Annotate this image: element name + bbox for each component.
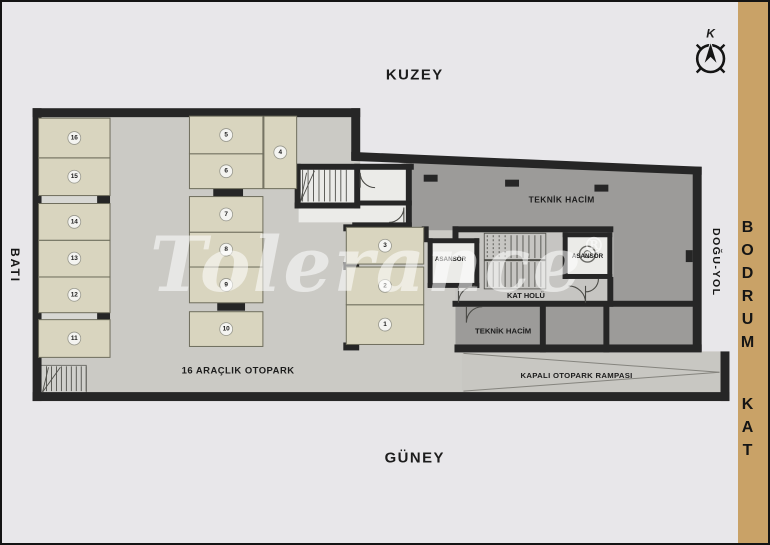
parking-spot-number: 12 — [71, 291, 79, 298]
parking-spot-number: 4 — [278, 149, 282, 156]
label-east: DOĞU-YOL — [710, 228, 722, 297]
parking-spot: 4 — [264, 116, 297, 188]
parking-spot-number: 9 — [224, 281, 228, 288]
floor-title: BODRUM KAT — [738, 142, 770, 542]
compass: K — [697, 27, 725, 73]
parking-spot-number: 2 — [383, 282, 387, 289]
parking-spot: 8 — [189, 232, 262, 267]
label-south: GÜNEY — [385, 450, 445, 467]
parking-spot: 3 — [346, 227, 423, 264]
parking-spot-number: 16 — [71, 134, 79, 141]
label-asansor-right: ASANSÖR — [572, 253, 604, 260]
parking-spot-number: 11 — [71, 335, 78, 342]
parking-spot: 7 — [189, 197, 262, 233]
label-teknik-hacim-small: TEKNİK HACİM — [475, 327, 531, 336]
floor-plan-drawing: 12345678910111213141516 TEKNİK HACİM ASA… — [2, 2, 768, 543]
label-rampa: KAPALI OTOPARK RAMPASI — [521, 371, 633, 380]
parking-spot: 14 — [39, 204, 110, 241]
label-teknik-hacim-main: TEKNİK HACİM — [529, 195, 595, 205]
label-kat-holu: KAT HOLÜ — [507, 291, 545, 300]
parking-spot: 10 — [189, 312, 262, 347]
parking-spot: 5 — [189, 116, 262, 154]
label-north: KUZEY — [386, 67, 444, 83]
parking-spot-number: 13 — [71, 255, 79, 262]
stair-room-area — [299, 168, 408, 223]
parking-spot-number: 8 — [224, 246, 228, 253]
parking-spot-number: 5 — [224, 132, 228, 139]
label-west: BATI — [8, 248, 22, 283]
parking-spot: 11 — [39, 320, 110, 358]
parking-spot-number: 7 — [224, 211, 228, 218]
parking-spot-number: 3 — [383, 242, 387, 249]
parking-spot: 9 — [189, 267, 262, 303]
parking-spot: 13 — [39, 240, 110, 277]
parking-spot-number: 15 — [71, 173, 79, 180]
parking-spot: 12 — [39, 277, 110, 313]
parking-spot-number: 14 — [71, 218, 79, 225]
parking-spot-number: 1 — [383, 321, 387, 328]
compass-letter: K — [706, 27, 716, 41]
parking-spot: 15 — [39, 158, 110, 196]
parking-spot-number: 6 — [224, 168, 228, 175]
parking-spot: 2 — [346, 267, 423, 305]
parking-spots: 12345678910111213141516 — [39, 116, 424, 357]
floor-plan-page: 12345678910111213141516 TEKNİK HACİM ASA… — [0, 0, 770, 545]
parking-spot: 16 — [39, 118, 110, 158]
parking-spot: 6 — [189, 154, 262, 189]
label-otopark: 16 ARAÇLIK OTOPARK — [182, 364, 295, 375]
parking-spot: 1 — [346, 305, 423, 345]
label-asansor-left: ASANSÖR — [435, 256, 467, 263]
parking-spot-number: 10 — [223, 326, 231, 333]
